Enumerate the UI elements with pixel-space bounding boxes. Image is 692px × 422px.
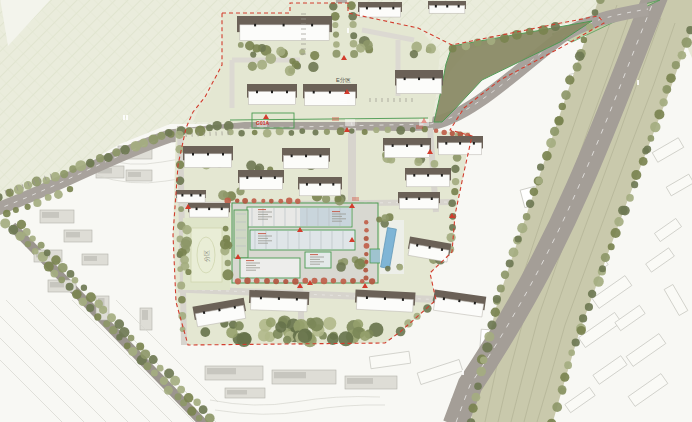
building [247, 84, 297, 105]
campus-building-3 [234, 210, 248, 258]
existing-gray-building [40, 210, 74, 223]
building [355, 289, 416, 312]
building [428, 1, 466, 13]
road-name-glyph [123, 115, 125, 120]
building [282, 148, 330, 169]
building [298, 177, 342, 196]
building [395, 70, 443, 94]
existing-gray-building [82, 254, 108, 265]
existing-gray-building [126, 170, 152, 181]
building [437, 136, 483, 155]
existing-gray-building [272, 370, 336, 384]
building [183, 146, 233, 168]
site-plan-image: 分区 E分区 G01A [0, 0, 692, 422]
park-zone-label: 分区 [203, 250, 210, 262]
site-plan-svg: 分区 E分区 G01A [0, 0, 692, 422]
campus-building-1-glass [300, 208, 351, 226]
existing-gray-building [64, 230, 92, 242]
building [358, 2, 402, 17]
building [188, 203, 230, 217]
road-name-glyph [462, 370, 464, 375]
building [176, 190, 206, 202]
building [237, 16, 332, 40]
road-name-glyph [347, 28, 349, 33]
building [249, 290, 310, 312]
existing-gray-building [205, 366, 263, 380]
building [303, 84, 357, 106]
building [383, 138, 431, 158]
existing-gray-building [225, 388, 265, 398]
parcel-code-label: G01A [256, 120, 269, 126]
zone-e-label: E分区 [336, 77, 351, 83]
road-name-glyph [637, 80, 639, 85]
building [398, 192, 440, 209]
school-campus [232, 203, 383, 283]
building [238, 170, 284, 190]
road-name-glyph [126, 115, 128, 120]
existing-gray-building [140, 308, 152, 330]
existing-gray-building [345, 376, 397, 389]
building [405, 168, 451, 187]
